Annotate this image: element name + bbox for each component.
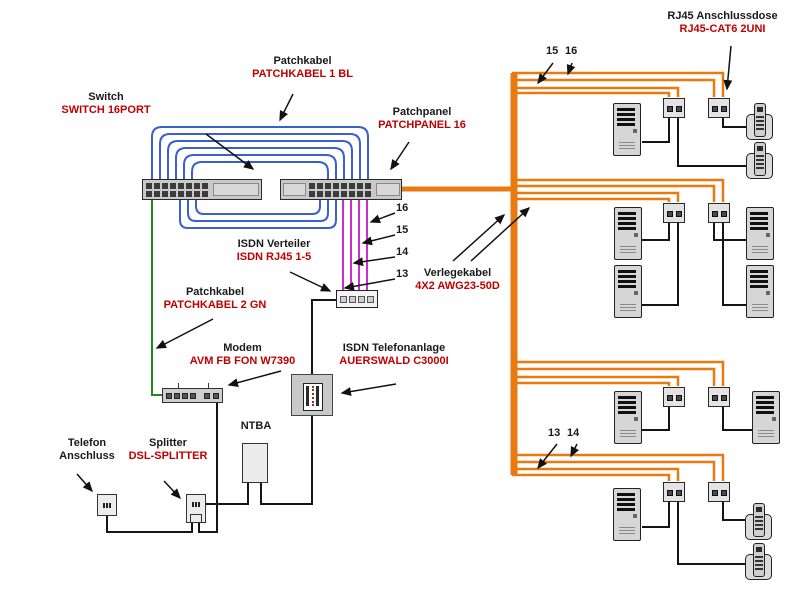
label-anlage-name: ISDN Telefonanlage — [310, 342, 478, 355]
arrow — [290, 272, 330, 291]
label-switch-product: SWITCH 16PORT — [36, 104, 176, 117]
rj45-outlet — [663, 203, 685, 223]
anlage-terminals — [312, 386, 314, 406]
computer-icon — [613, 488, 641, 541]
label-isdnverteiler: ISDN Verteiler ISDN RJ45 1-5 — [204, 238, 344, 264]
run-number-15: 15 — [546, 45, 558, 57]
orange-branch — [512, 377, 678, 386]
isdn-magenta-cables — [343, 199, 367, 290]
arrow — [727, 46, 731, 89]
rj45-port — [340, 296, 347, 303]
computer-icon — [752, 391, 780, 444]
label-switch-name: Switch — [36, 91, 176, 104]
label-isdnverteiler-product: ISDN RJ45 1-5 — [204, 251, 344, 264]
computer-icon — [614, 207, 642, 260]
label-patchpanel-name: Patchpanel — [352, 106, 492, 119]
phone-icon — [745, 543, 772, 580]
rj45-port — [358, 296, 365, 303]
port-number-16: 16 — [396, 202, 408, 214]
patchpanel-faceplate — [376, 183, 400, 196]
patchpanel-ports-row — [309, 183, 373, 189]
label-modem: Modem AVM FB FON W7390 — [160, 342, 325, 368]
phone-icon — [746, 142, 773, 179]
label-patchpanel-product: PATCHPANEL 16 — [352, 119, 492, 132]
phone-icon — [746, 103, 773, 140]
orange-branch — [512, 199, 669, 202]
orange-branch — [512, 383, 669, 386]
arrow — [371, 213, 395, 222]
outlet-to-pc-line — [714, 222, 746, 240]
rj45-port — [349, 296, 356, 303]
outlet-to-pc-line — [642, 501, 669, 527]
outlet-to-pc-line — [723, 406, 752, 430]
lan-port — [190, 393, 196, 399]
label-patchkabel2-name: Patchkabel — [145, 286, 285, 299]
lan-port — [182, 393, 188, 399]
phone-icon — [745, 503, 772, 540]
lan-port — [213, 393, 219, 399]
port-number-15: 15 — [396, 224, 408, 236]
arrow — [391, 142, 409, 169]
orange-branch — [512, 193, 678, 202]
run-number-13: 13 — [548, 427, 560, 439]
antenna — [208, 383, 209, 389]
rj45-outlet — [663, 387, 685, 407]
rj45-outlet — [663, 482, 685, 502]
arrow — [280, 94, 293, 120]
label-rj45dose: RJ45 Anschlussdose RJ45-CAT6 2UNI — [630, 10, 800, 36]
label-splitter-product: DSL-SPLITTER — [100, 450, 236, 463]
switch-ports-row — [146, 183, 210, 189]
cable-layer — [0, 0, 800, 600]
arrow — [354, 257, 395, 263]
computer-icon — [746, 207, 774, 260]
splitter-to-ntba-line — [206, 483, 248, 504]
blue-cable — [168, 141, 352, 180]
label-ntba-name: NTBA — [216, 420, 296, 433]
label-verlegekabel-product: 4X2 AWG23-50D — [385, 280, 530, 293]
isdn-telefonanlage-device — [291, 374, 333, 416]
outlet-to-phone-line — [678, 117, 747, 166]
run-number-16: 16 — [565, 45, 577, 57]
switch-ports-row — [146, 191, 210, 197]
label-switch: Switch SWITCH 16PORT — [36, 91, 176, 117]
orange-branch — [512, 93, 669, 97]
orange-branch — [512, 475, 669, 481]
telefon-anschluss-device — [97, 494, 117, 516]
arrow — [77, 474, 92, 491]
run-number-14: 14 — [567, 427, 579, 439]
rj45-outlet — [708, 98, 730, 118]
label-anlage-product: AUERSWALD C3000I — [310, 355, 478, 368]
computer-icon — [614, 265, 642, 318]
arrow — [471, 208, 529, 261]
label-modem-product: AVM FB FON W7390 — [160, 355, 325, 368]
label-splitter: Splitter DSL-SPLITTER — [100, 437, 236, 463]
label-ntba: NTBA — [216, 420, 296, 433]
patchpanel-device — [280, 179, 402, 200]
switch-device — [142, 179, 262, 200]
port-number-13: 13 — [396, 268, 408, 280]
rj45-outlet — [708, 482, 730, 502]
anlage-module — [303, 383, 323, 411]
splitter-device — [186, 494, 206, 523]
blue-cable — [188, 199, 328, 221]
tae-socket — [192, 502, 200, 507]
port-number-14: 14 — [396, 246, 408, 258]
ntba-device — [242, 443, 268, 483]
label-isdnverteiler-name: ISDN Verteiler — [204, 238, 344, 251]
orange-branch — [512, 462, 714, 481]
patchkabel-blue-cables — [152, 127, 368, 228]
blue-cable — [184, 155, 336, 180]
label-modem-name: Modem — [160, 342, 325, 355]
outlet-to-phone-line — [678, 501, 746, 564]
outlet-to-pc-line — [642, 117, 669, 142]
patchpanel-faceplate — [283, 183, 306, 196]
lan-port — [174, 393, 180, 399]
rj45-outlet — [708, 387, 730, 407]
arrow — [229, 371, 281, 385]
label-patchkabel2: Patchkabel PATCHKABEL 2 GN — [145, 286, 285, 312]
switch-faceplate — [213, 183, 259, 196]
outlet-to-pc-line — [723, 222, 746, 305]
label-patchkabel1-name: Patchkabel — [230, 55, 375, 68]
computer-icon — [614, 391, 642, 444]
label-patchpanel: Patchpanel PATCHPANEL 16 — [352, 106, 492, 132]
blue-cable — [176, 148, 344, 180]
computer-icon — [613, 103, 641, 156]
modem-device — [162, 388, 223, 403]
blue-cable — [196, 199, 320, 214]
rj45-outlet — [708, 203, 730, 223]
patchpanel-ports-row — [309, 191, 373, 197]
outlet-to-pc-line — [642, 222, 678, 305]
label-patchkabel1: Patchkabel PATCHKABEL 1 BL — [230, 55, 375, 81]
antenna — [178, 383, 179, 389]
computer-icon — [746, 265, 774, 318]
isdn-verteiler-device — [336, 290, 378, 308]
label-anlage: ISDN Telefonanlage AUERSWALD C3000I — [310, 342, 478, 368]
network-wiring-diagram: Switch SWITCH 16PORT Patchkabel PATCHKAB… — [0, 0, 800, 600]
outlet-to-phone-line — [723, 117, 747, 127]
label-splitter-name: Splitter — [100, 437, 236, 450]
lan-port — [166, 393, 172, 399]
blue-cable — [192, 162, 328, 180]
outlet-to-phone-line — [723, 501, 746, 520]
label-patchkabel1-product: PATCHKABEL 1 BL — [230, 68, 375, 81]
rj45-outlet — [663, 98, 685, 118]
outlet-to-pc-line — [642, 222, 669, 240]
label-rj45dose-product: RJ45-CAT6 2UNI — [630, 23, 800, 36]
outlet-to-pc-line — [642, 406, 669, 430]
arrow — [342, 384, 396, 393]
label-patchkabel2-product: PATCHKABEL 2 GN — [145, 299, 285, 312]
splitter-notch — [190, 514, 202, 523]
tae-socket — [103, 503, 111, 508]
rj45-port — [367, 296, 374, 303]
arrow — [206, 134, 253, 169]
arrow — [164, 481, 180, 498]
telefon-to-splitter-line — [107, 515, 192, 532]
label-rj45dose-name: RJ45 Anschlussdose — [630, 10, 800, 23]
lan-port — [204, 393, 210, 399]
